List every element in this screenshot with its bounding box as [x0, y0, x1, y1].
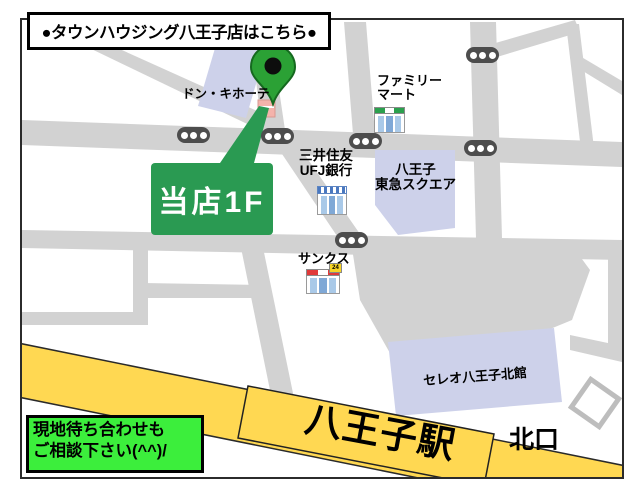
road-center-diagonal-lower — [238, 233, 294, 400]
traffic-light-icon — [466, 47, 499, 63]
road-left-stub — [22, 312, 148, 325]
traffic-light-icon — [261, 128, 294, 144]
road-loop-bottom-right — [571, 379, 618, 426]
north-exit-label: 北口 — [509, 420, 559, 456]
traffic-light-icon — [464, 140, 497, 156]
sunkus-icon: 24 — [306, 269, 340, 294]
sunkus-label: サンクス — [298, 252, 350, 266]
family-mart-icon — [374, 107, 405, 133]
road-mid-stub — [143, 283, 261, 298]
traffic-light-icon — [177, 127, 210, 143]
road-left-vertical-lower — [133, 246, 148, 320]
road-right-vertical-lower — [608, 246, 622, 350]
road-familymart-street — [344, 22, 375, 134]
don-quijote-label: ドン・キホーテ — [182, 88, 266, 102]
meetup-note-box: 現地待ち合わせも ご相談下さい(^^)/ — [26, 415, 204, 473]
store-floor-bubble: 当店1F — [151, 163, 273, 235]
map-area: ドン・キホーテ ファミリー マート 三井住友 UFJ銀行 八王子 東急スクエア … — [20, 18, 624, 479]
bank-label: 三井住友 UFJ銀行 — [287, 149, 365, 179]
access-map-page: ドン・キホーテ ファミリー マート 三井住友 UFJ銀行 八王子 東急スクエア … — [0, 0, 640, 496]
tokyu-square-label: 八王子 東急スクエア — [375, 163, 456, 193]
family-mart-label: ファミリー マート — [377, 74, 442, 103]
bank-icon — [317, 186, 347, 215]
road-topright-vertical — [566, 24, 594, 150]
map-title-box: ●タウンハウジング八王子店はこちら● — [27, 12, 331, 50]
traffic-light-icon — [349, 133, 382, 149]
traffic-light-icon — [335, 232, 368, 248]
